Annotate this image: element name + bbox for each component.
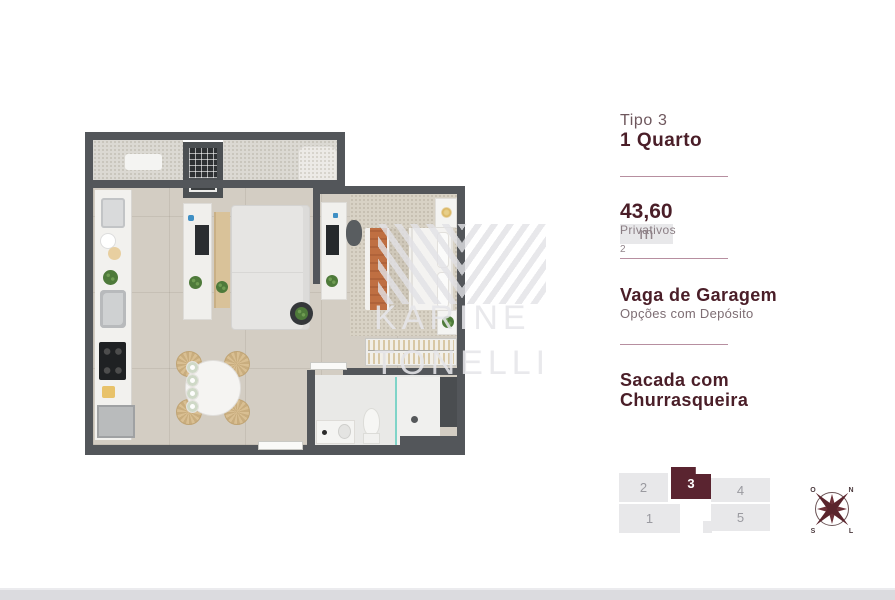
unit-type-name: 1 Quarto — [620, 130, 702, 152]
compass-label-west: O — [810, 487, 816, 494]
shower-head — [411, 416, 418, 423]
wall — [85, 132, 345, 140]
balcony-bench — [125, 154, 162, 170]
table-lamp — [441, 207, 452, 218]
unit-map-block-4: 4 — [711, 478, 770, 502]
bedroom-tv — [326, 225, 339, 255]
watermark-logo-stripes — [462, 224, 546, 304]
console-device — [188, 215, 194, 221]
desk-plant — [326, 275, 338, 287]
balcony-title-line2: Churrasqueira — [620, 390, 748, 411]
watermark-line2: TONELLI — [374, 341, 550, 386]
compass-label-south: S — [811, 528, 816, 535]
cooktop — [99, 342, 126, 380]
garage-caption: Opções com Depósito — [620, 306, 754, 321]
tv-screen — [195, 225, 209, 255]
divider — [620, 344, 728, 345]
compass-rose: O N S L — [800, 477, 864, 541]
unit-map-block-5-tab — [703, 521, 712, 533]
place-setting — [186, 361, 199, 374]
sideboard-plant — [216, 281, 228, 293]
wood-sideboard — [214, 212, 230, 308]
place-setting — [186, 387, 199, 400]
kitchen-sink-top — [101, 198, 125, 228]
watermark-text: KARINE TONELLI — [374, 296, 550, 386]
wall — [400, 436, 457, 450]
wall — [307, 370, 315, 445]
place-setting — [186, 374, 199, 387]
dining-table — [185, 360, 241, 416]
kitchen-bowl — [108, 247, 121, 260]
garage-title: Vaga de Garagem — [620, 285, 777, 306]
toilet — [363, 408, 380, 436]
tv-console — [183, 203, 212, 320]
divider — [620, 176, 728, 177]
toilet-tank — [363, 433, 380, 444]
desk-chair — [346, 220, 362, 246]
watermark-logo — [378, 224, 546, 304]
desk-device — [333, 213, 338, 218]
shower-floor — [397, 377, 440, 445]
shower-glass-partition — [395, 377, 397, 445]
compass-label-north: N — [848, 487, 853, 494]
place-setting — [186, 400, 199, 413]
bathroom-door — [310, 362, 347, 370]
unit-map-block-3-highlighted: 3 — [671, 467, 711, 499]
kitchen-double-sink — [100, 290, 126, 328]
watermark-logo-stripes — [378, 224, 462, 304]
entry-door — [258, 441, 303, 450]
bbq-grill — [189, 148, 217, 178]
unit-type-label: Tipo 3 — [620, 112, 667, 130]
wall — [85, 180, 345, 188]
area-value: 43,60 — [620, 200, 673, 223]
balcony-title-line1: Sacada com — [620, 370, 729, 391]
divider — [620, 258, 728, 259]
vanity-basin — [338, 424, 351, 439]
kitchen-cabinet — [97, 405, 135, 438]
vanity-item — [322, 430, 327, 435]
kitchen-jar — [102, 386, 115, 398]
unit-map-block-5: 5 — [711, 504, 770, 531]
unit-map-block-2: 2 — [619, 473, 668, 502]
floor-plant — [295, 307, 308, 320]
area-superscript: 2 — [620, 244, 626, 255]
watermark-line1: KARINE — [374, 296, 550, 341]
unit-map-block-1: 1 — [619, 504, 680, 533]
kitchen-plant — [103, 270, 118, 285]
wall — [313, 194, 320, 284]
compass-label-east: L — [849, 528, 854, 535]
area-caption: Privativos — [620, 223, 676, 237]
console-plant — [189, 276, 202, 289]
bottom-bar — [0, 588, 895, 600]
